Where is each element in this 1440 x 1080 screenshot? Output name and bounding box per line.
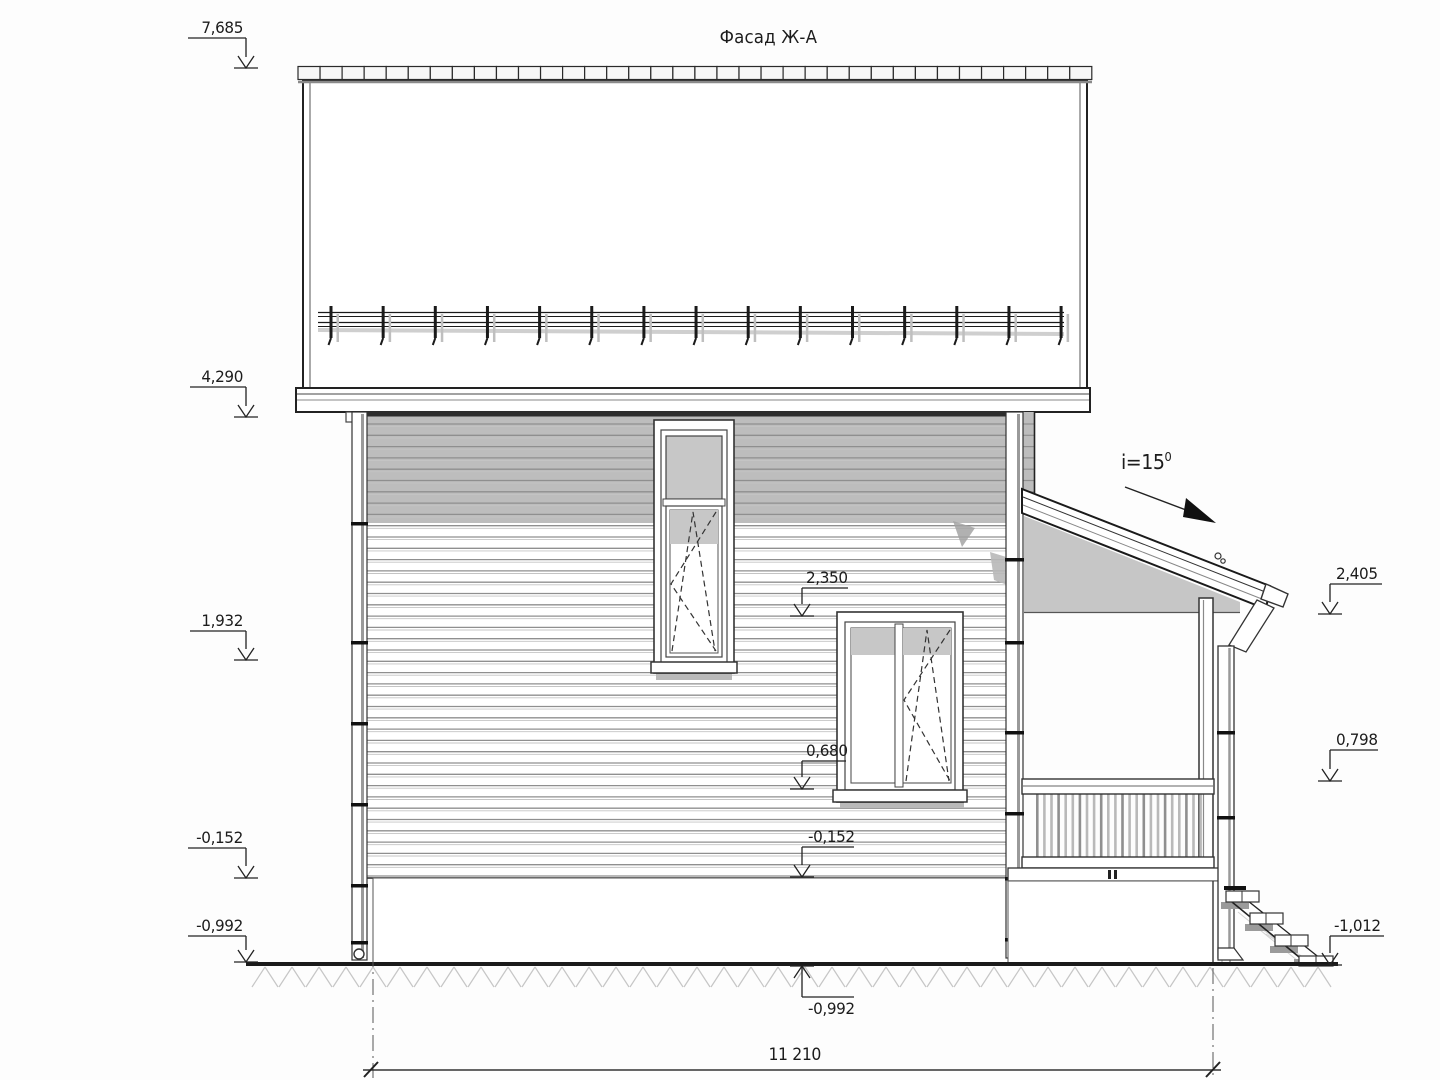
hatch-stroke <box>265 967 278 987</box>
ridge-cap-segment <box>585 67 607 80</box>
snow-bracket <box>642 306 645 338</box>
ridge-cap-segment <box>783 67 805 80</box>
railing-baluster <box>1079 794 1082 858</box>
ridge-cap-segment <box>386 67 408 80</box>
railing-baluster <box>1135 794 1138 858</box>
elevation-label-mid-m0992: -0,992 <box>808 1000 855 1018</box>
slope-arrow <box>1125 487 1216 523</box>
railing-baluster <box>1128 794 1131 858</box>
snow-bracket-shadow <box>441 314 444 342</box>
hatch-stroke <box>1021 967 1034 987</box>
elevation-label-0798: 0,798 <box>1336 731 1378 749</box>
main-roof <box>296 67 1092 423</box>
marker-right-0798 <box>1318 750 1378 781</box>
ridge-cap-segment <box>320 67 342 80</box>
hatch-stroke <box>805 967 818 987</box>
snow-bracket <box>695 306 698 338</box>
snow-bracket-shadow <box>1067 314 1070 342</box>
window-right-sill <box>833 790 967 802</box>
elevation-label-mid-m0152: -0,152 <box>808 828 855 846</box>
hatch-stroke <box>778 967 791 987</box>
snow-bracket-shadow <box>337 314 340 342</box>
railing-baluster <box>1178 794 1181 858</box>
hatch-stroke <box>670 967 683 987</box>
railing-baluster <box>1157 794 1160 858</box>
window-right <box>833 612 967 808</box>
ridge-cap-segment <box>960 67 982 80</box>
snow-bracket <box>1007 306 1010 338</box>
ridge-cap-segment <box>695 67 717 80</box>
hatch-stroke <box>1035 967 1048 987</box>
deck-mark-2 <box>1114 870 1117 879</box>
snow-bracket <box>747 306 750 338</box>
hatch-stroke <box>279 967 292 987</box>
porch-downpipe-joint-1 <box>1217 731 1235 735</box>
marker-left-m0992 <box>188 936 258 962</box>
hatch-stroke <box>1305 967 1318 987</box>
hatch-stroke <box>1170 967 1183 987</box>
hatch-stroke <box>711 967 724 987</box>
snow-bracket-shadow <box>858 314 861 342</box>
hatch-stroke <box>886 967 899 987</box>
eaves-drop-shadow <box>366 412 1010 417</box>
hatch-stroke <box>994 967 1007 987</box>
slope-superscript: 0 <box>1164 450 1171 464</box>
marker-right-2405 <box>1318 584 1382 614</box>
hatch-stroke <box>630 967 643 987</box>
snow-bracket-shadow <box>649 314 652 342</box>
railing-baluster <box>1171 794 1174 858</box>
porch-downpipe-joint-3 <box>1224 886 1246 890</box>
railing-baluster <box>1093 794 1096 858</box>
hatch-stroke <box>576 967 589 987</box>
ridge-cap-segment <box>915 67 937 80</box>
hatch-stroke <box>765 967 778 987</box>
hatch-stroke <box>738 967 751 987</box>
stair-treads <box>1226 891 1333 966</box>
hatch-stroke <box>319 967 332 987</box>
elevation-label-left-m0152: -0,152 <box>184 829 243 847</box>
hatch-stroke <box>346 967 359 987</box>
drawing-title: Фасад Ж-А <box>690 29 847 47</box>
hatch-stroke <box>441 967 454 987</box>
hatch-stroke <box>1183 967 1196 987</box>
snow-bracket <box>330 306 333 338</box>
hatch-stroke <box>495 967 508 987</box>
snow-bracket-shadow <box>806 314 809 342</box>
foundation-wall <box>373 878 1008 964</box>
hatch-stroke <box>306 967 319 987</box>
window-left-top-pane <box>666 436 722 499</box>
hatch-stroke <box>1210 967 1223 987</box>
ridge-cap-segment <box>739 67 761 80</box>
window-left-sill <box>651 662 737 673</box>
ridge-cap-segment <box>563 67 585 80</box>
porch-deck-band <box>1008 868 1230 881</box>
window-left <box>651 420 737 680</box>
hatch-stroke <box>643 967 656 987</box>
porch-downpipe-joint-2 <box>1217 816 1235 820</box>
wall-return-shade <box>1023 412 1035 499</box>
hatch-stroke <box>697 967 710 987</box>
hatch-stroke <box>1318 967 1331 987</box>
railing-baluster <box>1100 794 1103 858</box>
ridge-cap-segment <box>849 67 871 80</box>
ridge-cap-segment <box>717 67 739 80</box>
railing-baluster <box>1064 794 1067 858</box>
snow-bracket-shadow <box>545 314 548 342</box>
gutter-hanger-1 <box>1215 553 1221 559</box>
porch-railing <box>1022 779 1214 868</box>
porch <box>1008 489 1333 966</box>
hatch-stroke <box>292 967 305 987</box>
elevation-label-left-m0992: -0,992 <box>184 917 243 935</box>
snow-bracket <box>903 306 906 338</box>
hatch-stroke <box>1062 967 1075 987</box>
ridge-cap-segment <box>519 67 541 80</box>
hatch-stroke <box>252 967 265 987</box>
hatch-stroke <box>1264 967 1277 987</box>
hatch-stroke <box>616 967 629 987</box>
hatch-stroke <box>1116 967 1129 987</box>
snow-bracket <box>382 306 385 338</box>
dimension-value: 11 210 <box>752 1046 838 1064</box>
porch-downpipe-run <box>1218 646 1234 958</box>
slope-value: i=15 <box>1121 450 1164 474</box>
ridge-cap-segment <box>342 67 364 80</box>
ridge-cap-segment <box>496 67 518 80</box>
deck-mark-1 <box>1108 870 1111 879</box>
ridge-cap-segment <box>629 67 651 80</box>
hatch-stroke <box>1048 967 1061 987</box>
ridge-cap-segment <box>937 67 959 80</box>
porch-foundation <box>1008 881 1230 964</box>
ridge-cap-segment <box>805 67 827 80</box>
gutter-hanger-2 <box>1221 559 1225 563</box>
railing-baluster <box>1143 794 1146 858</box>
elevation-label-2350: 2,350 <box>806 569 848 587</box>
facade-drawing-sheet: Фасад Ж-А 7,685 4,290 1,932 -0,152 -0,99… <box>0 0 1440 1080</box>
elevation-label-1932: 1,932 <box>186 612 243 630</box>
hatch-stroke <box>508 967 521 987</box>
railing-baluster <box>1107 794 1110 858</box>
ridge-cap-segment <box>541 67 563 80</box>
ridge-cap-segment <box>452 67 474 80</box>
hatch-stroke <box>427 967 440 987</box>
window-right-mullion <box>895 624 903 787</box>
ridge-cap-segment <box>761 67 783 80</box>
hatch-stroke <box>1102 967 1115 987</box>
snow-bracket <box>434 306 437 338</box>
hatch-stroke <box>940 967 953 987</box>
ridge-cap-segment <box>1070 67 1092 80</box>
ridge-cap-segment <box>651 67 673 80</box>
snow-bracket-shadow <box>597 314 600 342</box>
snow-bracket-shadow <box>389 314 392 342</box>
ridge-cap-segment <box>871 67 893 80</box>
hatch-stroke <box>387 967 400 987</box>
ridge-cap-segment <box>430 67 452 80</box>
hatch-stroke <box>333 967 346 987</box>
ground-hatch <box>252 967 1331 987</box>
hatch-stroke <box>819 967 832 987</box>
hatch-stroke <box>1278 967 1291 987</box>
window-left-divider <box>663 499 725 506</box>
slope-annotation: i=150 <box>1121 448 1171 471</box>
elevation-label-0680: 0,680 <box>806 742 848 760</box>
marker-left-1932 <box>190 631 258 660</box>
railing-baluster <box>1043 794 1046 858</box>
snow-bracket-shadow <box>962 314 965 342</box>
hatch-stroke <box>414 967 427 987</box>
snow-bracket-shadow <box>1014 314 1017 342</box>
hatch-stroke <box>549 967 562 987</box>
ridge-cap-segment <box>607 67 629 80</box>
marker-left-4290 <box>190 387 258 417</box>
hatch-stroke <box>454 967 467 987</box>
snow-bracket <box>486 306 489 338</box>
hatch-stroke <box>360 967 373 987</box>
ridge-cap-segment <box>1048 67 1070 80</box>
hatch-stroke <box>724 967 737 987</box>
hatch-stroke <box>967 967 980 987</box>
ridge-cap-segment <box>1026 67 1048 80</box>
hatch-stroke <box>1143 967 1156 987</box>
snow-bracket <box>799 306 802 338</box>
railing-baluster <box>1050 794 1053 858</box>
hatch-stroke <box>1156 967 1169 987</box>
hatch-stroke <box>522 967 535 987</box>
hatch-stroke <box>1237 967 1250 987</box>
snow-bracket-shadow <box>493 314 496 342</box>
railing-baluster <box>1036 794 1039 858</box>
snow-bracket-shadow <box>910 314 913 342</box>
ridge-cap-segment <box>982 67 1004 80</box>
hatch-stroke <box>468 967 481 987</box>
porch-downpipe-shoe <box>1218 948 1243 960</box>
hatch-stroke <box>535 967 548 987</box>
hatch-stroke <box>589 967 602 987</box>
hatch-stroke <box>684 967 697 987</box>
ridge-cap-segment <box>827 67 849 80</box>
railing-baluster <box>1072 794 1075 858</box>
railing-bottom-rail <box>1022 857 1214 868</box>
snow-bracket-shadow <box>702 314 705 342</box>
railing-balusters <box>1036 794 1202 858</box>
ridge-caps <box>298 67 1092 80</box>
marker-left-m0152 <box>188 848 258 878</box>
railing-baluster <box>1114 794 1117 858</box>
downpipe-left <box>351 412 368 960</box>
hatch-stroke <box>981 967 994 987</box>
snow-bracket <box>590 306 593 338</box>
railing-baluster <box>1086 794 1089 858</box>
ridge-cap-segment <box>298 67 320 80</box>
railing-baluster <box>1057 794 1060 858</box>
ridge-cap-segment <box>408 67 430 80</box>
hatch-stroke <box>603 967 616 987</box>
snow-bracket <box>851 306 854 338</box>
hatch-stroke <box>751 967 764 987</box>
stair-stringer-1 <box>1232 902 1310 966</box>
hatch-stroke <box>562 967 575 987</box>
ridge-cap-segment <box>364 67 386 80</box>
elevation-label-2405: 2,405 <box>1336 565 1378 583</box>
railing-baluster <box>1121 794 1124 858</box>
window-left-sill-shadow <box>656 673 732 680</box>
hatch-stroke <box>1224 967 1237 987</box>
hatch-stroke <box>913 967 926 987</box>
hatch-stroke <box>1251 967 1264 987</box>
ridge-cap-segment <box>893 67 915 80</box>
hatch-stroke <box>927 967 940 987</box>
hatch-stroke <box>657 967 670 987</box>
railing-baluster <box>1150 794 1153 858</box>
hatch-stroke <box>954 967 967 987</box>
hatch-stroke <box>832 967 845 987</box>
elevation-label-m1012: -1,012 <box>1334 917 1381 935</box>
railing-baluster <box>1164 794 1167 858</box>
snow-bracket-shadow <box>754 314 757 342</box>
hatch-stroke <box>1075 967 1088 987</box>
hatch-stroke <box>373 967 386 987</box>
snow-bracket <box>1060 306 1063 338</box>
hatch-stroke <box>1129 967 1142 987</box>
hatch-stroke <box>859 967 872 987</box>
window-right-fixed-shade <box>851 628 895 655</box>
hatch-stroke <box>873 967 886 987</box>
hatch-stroke <box>846 967 859 987</box>
elevation-label-4290: 4,290 <box>186 368 243 386</box>
marker-left-7685 <box>188 38 258 68</box>
snow-bracket <box>538 306 541 338</box>
ridge-cap-segment <box>673 67 695 80</box>
hatch-stroke <box>1291 967 1304 987</box>
railing-baluster <box>1192 794 1195 858</box>
ridge-cap-segment <box>474 67 496 80</box>
hatch-stroke <box>1008 967 1021 987</box>
hatch-stroke <box>481 967 494 987</box>
hatch-stroke <box>1197 967 1210 987</box>
elevation-label-7685: 7,685 <box>186 19 243 37</box>
hatch-stroke <box>400 967 413 987</box>
hatch-stroke <box>1089 967 1102 987</box>
hatch-stroke <box>900 967 913 987</box>
snow-bracket <box>955 306 958 338</box>
downpipe-left-shoe <box>354 949 364 959</box>
railing-baluster <box>1185 794 1188 858</box>
ridge-cap-segment <box>1004 67 1026 80</box>
railing-baluster <box>1199 794 1202 858</box>
